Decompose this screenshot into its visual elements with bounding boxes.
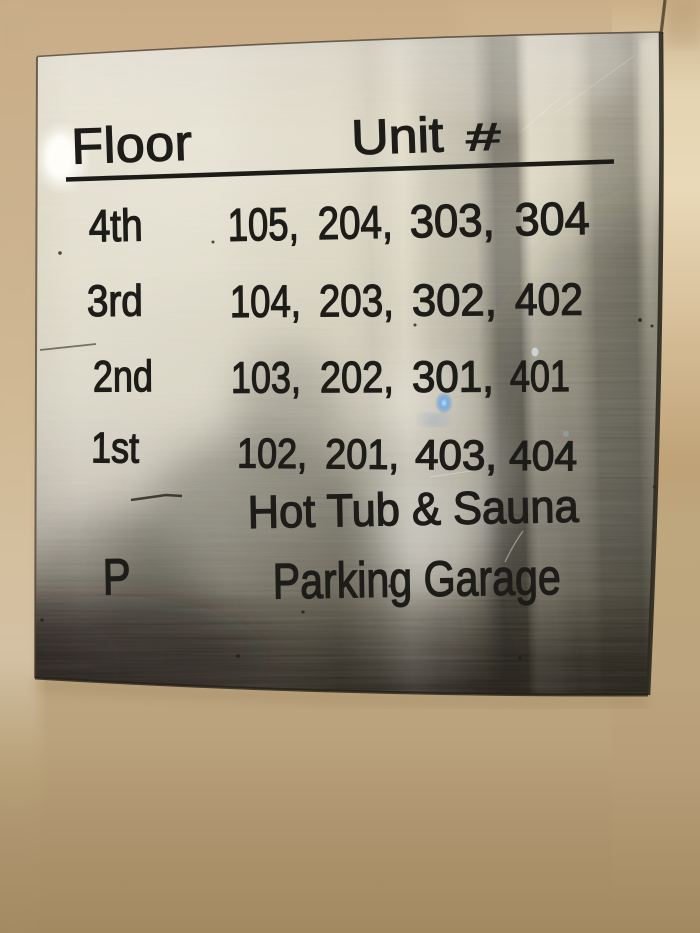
svg-text:204,: 204, [317,196,393,249]
svg-text:202,: 202, [320,353,394,402]
svg-text:105,: 105, [227,197,299,250]
svg-text:4th: 4th [88,199,143,251]
svg-text:Hot Tub & Sauna: Hot Tub & Sauna [247,480,579,538]
svg-text:302,: 302, [412,274,497,326]
svg-text:403,: 403, [415,431,497,479]
svg-text:Unit: Unit [350,108,444,165]
svg-text:203,: 203, [319,275,394,327]
svg-text:Floor: Floor [71,115,194,175]
svg-text:304: 304 [514,192,590,245]
svg-text:1st: 1st [91,424,139,472]
svg-text:401: 401 [510,352,570,401]
svg-text:201,: 201, [325,430,399,478]
svg-text:Parking Garage: Parking Garage [272,549,561,610]
svg-text:P: P [102,548,131,605]
svg-text:3rd: 3rd [87,277,143,326]
svg-text:2nd: 2nd [93,352,153,401]
svg-text:#: # [466,116,501,159]
svg-text:104,: 104, [230,276,301,327]
svg-text:301,: 301, [412,352,494,401]
svg-text:103,: 103, [231,353,301,402]
svg-text:402: 402 [515,274,583,325]
svg-text:404: 404 [509,432,577,480]
svg-text:303,: 303, [409,194,495,248]
svg-text:102,: 102, [237,429,307,477]
